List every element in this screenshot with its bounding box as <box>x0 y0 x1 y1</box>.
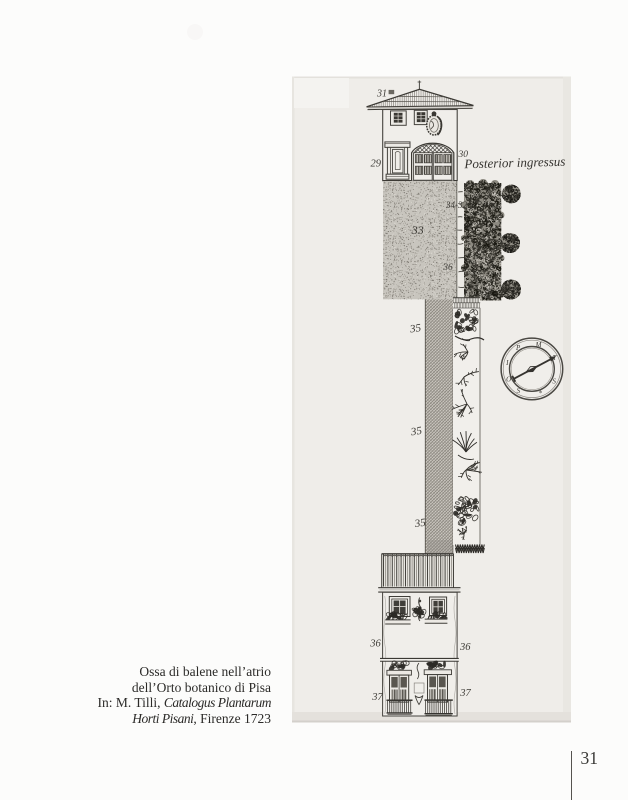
svg-text:S: S <box>552 378 556 386</box>
svg-text:*: * <box>538 389 542 397</box>
svg-text:36: 36 <box>459 642 471 653</box>
svg-text:34-32: 34-32 <box>445 200 467 210</box>
svg-text:29: 29 <box>371 159 382 170</box>
svg-text:P: P <box>515 344 521 352</box>
svg-text:37: 37 <box>371 692 383 703</box>
svg-text:S: S <box>517 387 521 395</box>
svg-text:35: 35 <box>408 322 422 336</box>
svg-text:Posterior ingressus: Posterior ingressus <box>463 154 565 172</box>
svg-text:31: 31 <box>376 89 387 100</box>
svg-text:O: O <box>506 376 511 384</box>
svg-text:35: 35 <box>409 425 423 439</box>
svg-text:M: M <box>535 341 543 349</box>
svg-text:36: 36 <box>442 263 453 273</box>
svg-text:35: 35 <box>413 517 427 531</box>
svg-text:36: 36 <box>369 639 381 650</box>
svg-text:33: 33 <box>411 223 424 237</box>
svg-text:37: 37 <box>459 688 471 699</box>
